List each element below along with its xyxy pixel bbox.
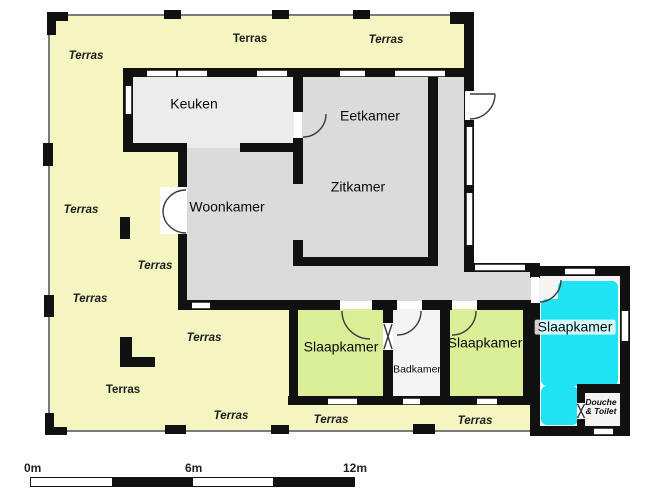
door-swing-icon	[397, 311, 421, 335]
scale-label-0m: 0m	[24, 461, 41, 475]
door-swing-icon	[163, 190, 186, 212]
scale-bar-ruler	[30, 477, 355, 487]
room-label-slaapkamer-2: Slaapkamer	[448, 336, 523, 351]
terras-label-11: Terras	[458, 415, 493, 427]
terras-label-2: Terras	[233, 33, 267, 45]
terras-label-4: Terras	[64, 204, 99, 216]
scale-label-12m: 12m	[343, 461, 367, 475]
room-label-slaapkamer-1: Slaapkamer	[304, 340, 379, 355]
door-swing-icon	[470, 94, 495, 119]
door-swing-icon	[342, 311, 370, 339]
terras-label-7: Terras	[187, 332, 222, 344]
terras-label-6: Terras	[73, 293, 108, 305]
door-swing-icon	[303, 114, 326, 137]
door-swing-icon	[163, 212, 186, 233]
room-label-slaapkamer-3: Slaapkamer	[535, 320, 616, 335]
room-label-badkamer: Badkamer	[393, 364, 441, 375]
floor-plan: KeukenEetkamerZitkamerWoonkamerSlaapkame…	[0, 0, 666, 500]
terras-label-3: Terras	[369, 34, 404, 46]
room-label-keuken: Keuken	[170, 97, 217, 112]
room-label-eetkamer: Eetkamer	[340, 109, 400, 124]
terras-label-8: Terras	[106, 384, 140, 396]
room-label-woonkamer: Woonkamer	[189, 200, 264, 215]
terras-label-5: Terras	[138, 260, 173, 272]
room-label-douche-toilet: Douche & Toilet	[585, 398, 616, 416]
room-label-zitkamer: Zitkamer	[331, 180, 385, 195]
terras-label-1: Terras	[69, 50, 104, 62]
scale-label-6m: 6m	[185, 461, 202, 475]
terras-label-10: Terras	[314, 414, 349, 426]
terras-label-9: Terras	[214, 410, 249, 422]
door-swing-icon	[452, 311, 476, 335]
door-swing-icon	[540, 280, 561, 302]
